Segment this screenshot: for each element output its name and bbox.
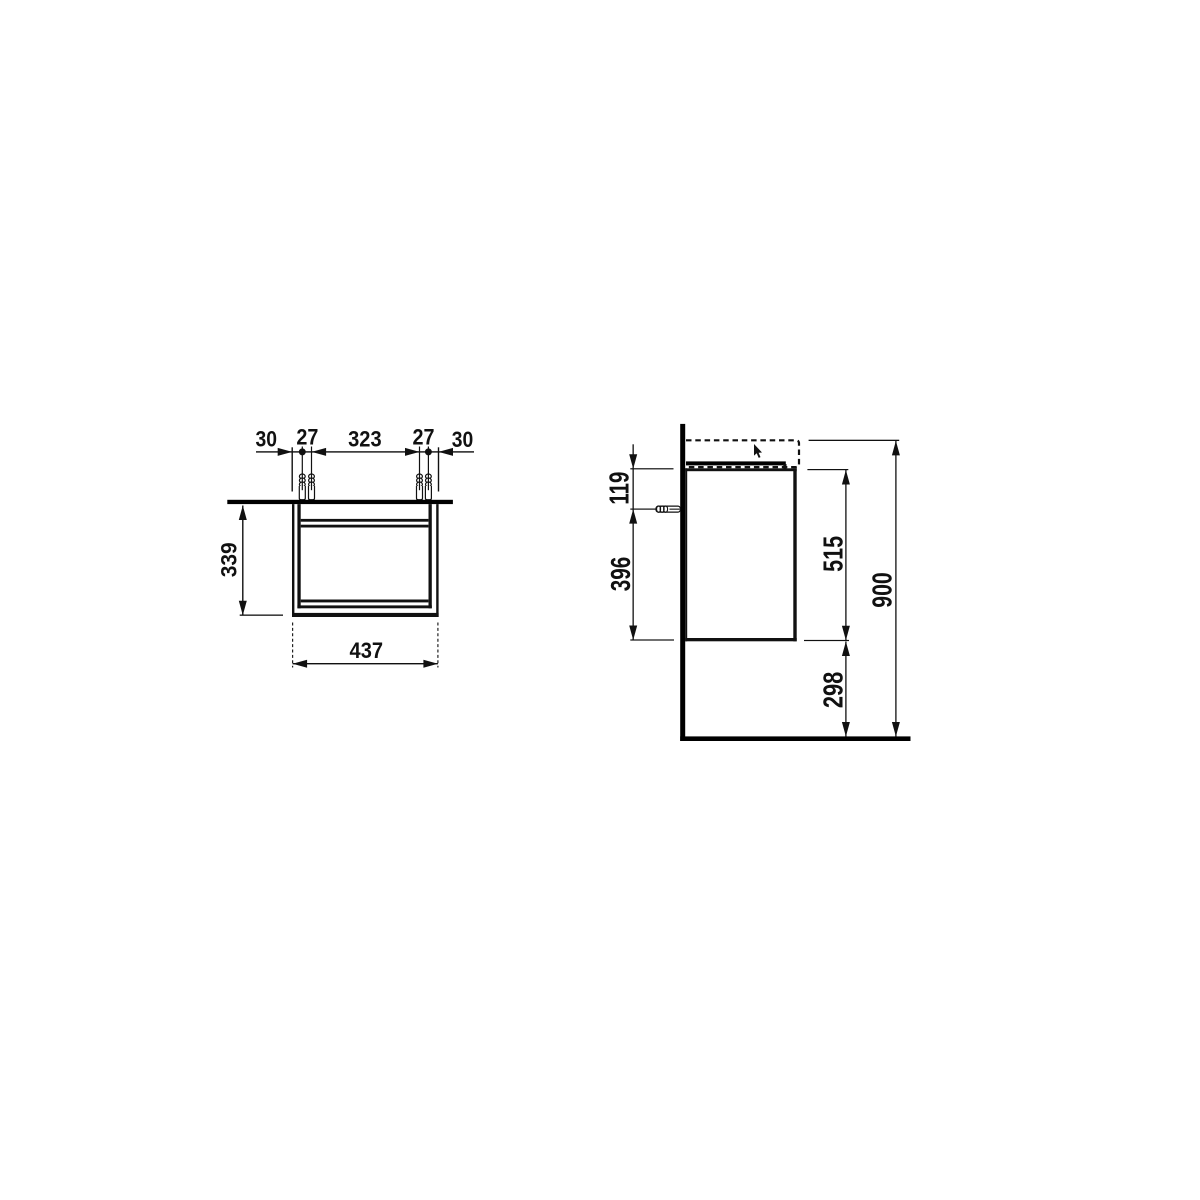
svg-text:339: 339 bbox=[217, 542, 242, 577]
svg-text:298: 298 bbox=[818, 672, 849, 709]
svg-text:30: 30 bbox=[256, 427, 278, 452]
svg-text:27: 27 bbox=[413, 425, 435, 450]
svg-text:396: 396 bbox=[605, 557, 636, 592]
svg-text:900: 900 bbox=[867, 572, 898, 608]
svg-text:27: 27 bbox=[296, 425, 318, 450]
svg-text:437: 437 bbox=[350, 638, 384, 663]
svg-text:119: 119 bbox=[603, 472, 634, 505]
svg-text:515: 515 bbox=[818, 536, 849, 572]
svg-text:323: 323 bbox=[348, 427, 382, 452]
svg-text:30: 30 bbox=[452, 427, 474, 452]
